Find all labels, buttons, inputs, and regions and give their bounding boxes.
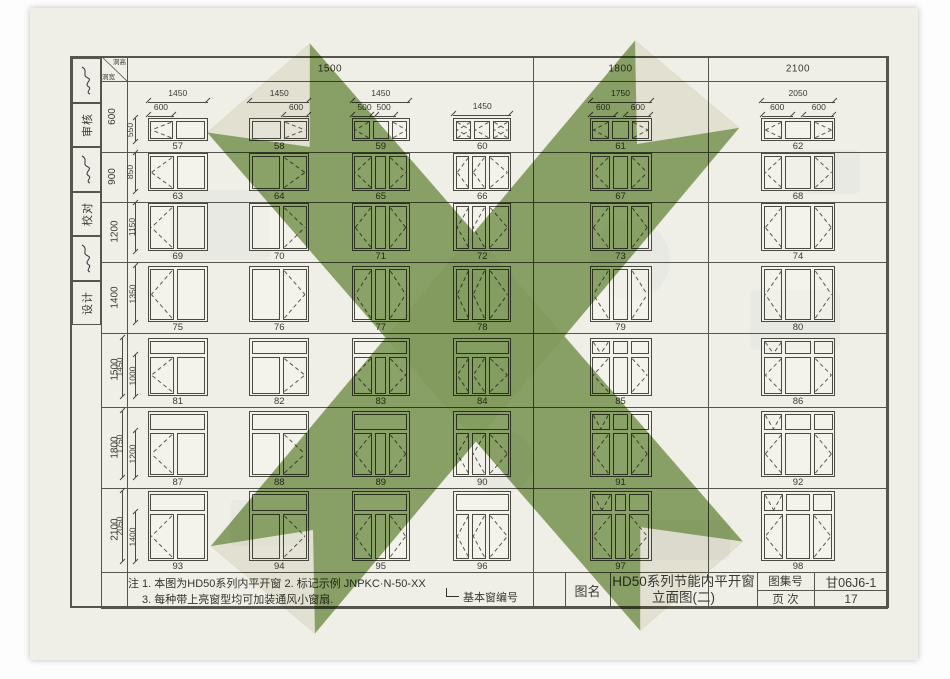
- sash-row: [454, 492, 510, 512]
- window-cell-72: 72: [432, 202, 534, 263]
- window-cell-90: 90: [432, 407, 534, 489]
- opening-direction-mark: [815, 207, 832, 248]
- fixed-pane: [177, 433, 206, 475]
- fixed-pane: [252, 341, 307, 355]
- opening-pane: [813, 514, 832, 559]
- opening-direction-mark: [473, 434, 485, 474]
- fixed-pane: [252, 206, 281, 249]
- dim-line: [590, 116, 616, 117]
- opening-direction-mark: [284, 434, 305, 474]
- window-cell-93: 2050140093: [127, 488, 229, 573]
- sash-row: [762, 267, 834, 321]
- opening-direction-mark: [490, 515, 508, 558]
- sash-row: [591, 512, 651, 560]
- window-drawing-wrap: [249, 411, 309, 477]
- sash-row: [762, 431, 834, 476]
- opening-pane: [764, 341, 783, 355]
- fixed-pane: [176, 121, 205, 139]
- fixed-pane: [150, 414, 205, 430]
- window-cell-83: 83: [330, 333, 432, 408]
- corner-label-hole-width: 洞宽: [102, 71, 115, 81]
- opening-pane: [150, 206, 173, 249]
- window-drawing-wrap: [761, 203, 835, 251]
- sash-row: [149, 267, 207, 321]
- opening-pane: [472, 156, 486, 189]
- window-drawing-wrap: [352, 338, 410, 396]
- callout-label: 基本窗编号: [463, 589, 518, 605]
- opening-pane: [631, 156, 649, 189]
- opening-direction-mark: [765, 434, 782, 474]
- opening-direction-mark: [593, 207, 609, 248]
- fixed-pane: [252, 357, 281, 393]
- opening-direction-mark: [632, 434, 648, 474]
- dim-line: [625, 116, 651, 117]
- width-dimension-sub: 600: [625, 105, 651, 117]
- sidebar-label-cell: 审核: [72, 103, 101, 148]
- window-number: 58: [274, 142, 285, 152]
- opening-direction-mark: [490, 434, 508, 474]
- fixed-pane: [375, 156, 386, 189]
- dim-text: 1450: [114, 358, 124, 377]
- window-cell-82: 82: [229, 333, 331, 408]
- window-drawing-wrap: [453, 118, 511, 141]
- window-cell-58: 145060058: [229, 81, 331, 153]
- opening-direction-mark: [632, 157, 648, 188]
- opening-direction-mark: [814, 515, 831, 558]
- sash-row: [353, 512, 409, 560]
- height-dimension: 1150: [135, 203, 136, 251]
- opening-direction-mark: [490, 157, 508, 188]
- sash-row: [454, 154, 510, 190]
- width-dimension-sub: 500: [371, 105, 395, 117]
- opening-direction-mark: [765, 358, 782, 392]
- opening-direction-mark: [593, 358, 609, 392]
- window-drawing-wrap: [590, 491, 652, 561]
- opening-pane: [592, 121, 609, 139]
- opening-pane: [489, 206, 509, 249]
- sash-row: [149, 154, 207, 190]
- window-elevation-80: [761, 266, 835, 322]
- fixed-pane: [786, 494, 810, 511]
- window-cell-71: 71: [330, 202, 432, 263]
- sash-row: [250, 339, 308, 356]
- opening-pane: [629, 514, 649, 559]
- opening-direction-mark: [473, 207, 485, 248]
- opening-pane: [814, 269, 833, 320]
- width-dimension-total: 1450: [453, 104, 511, 116]
- opening-direction-mark: [390, 434, 406, 474]
- window-number: 84: [477, 397, 488, 407]
- dim-text: 600: [283, 103, 308, 112]
- window-cell-67: 67: [533, 152, 708, 203]
- window-drawing-wrap: [352, 118, 410, 141]
- window-number: 98: [793, 562, 804, 572]
- dim-text: 600: [803, 103, 834, 112]
- window-drawing-wrap: [453, 153, 511, 191]
- fixed-pane: [354, 341, 407, 355]
- window-cell-61: 175060060061: [533, 81, 708, 153]
- dim-text: 850: [125, 165, 135, 179]
- sash-row: [353, 267, 409, 321]
- handwritten-signature: [79, 63, 95, 97]
- window-cell-89: 89: [330, 407, 432, 489]
- opening-pane: [392, 121, 408, 139]
- window-number: 80: [793, 323, 804, 333]
- window-drawing-wrap: [453, 266, 511, 322]
- opening-pane: [631, 433, 649, 475]
- window-drawing-wrap: [352, 203, 410, 251]
- window-elevation-63: [148, 153, 208, 191]
- opening-pane: [283, 156, 306, 189]
- window-drawing-wrap: [761, 338, 835, 396]
- sash-row: [250, 492, 308, 512]
- opening-direction-mark: [633, 122, 648, 138]
- sash-row: [454, 431, 510, 476]
- fixed-pane: [252, 156, 281, 189]
- window-cell-65: 65: [330, 152, 432, 203]
- sash-row: [250, 267, 308, 321]
- opening-direction-mark: [632, 358, 648, 392]
- window-number: 91: [615, 478, 626, 488]
- grid-line: [101, 608, 888, 609]
- window-cell-70: 70: [229, 202, 331, 263]
- window-cell-74: 74: [708, 202, 888, 263]
- sash-row: [250, 412, 308, 431]
- window-cell-76: 76: [229, 262, 331, 334]
- opening-pane: [472, 206, 486, 249]
- sash-row: [591, 492, 651, 512]
- width-dimension-sub: 600: [803, 105, 834, 117]
- window-number: 72: [477, 252, 488, 262]
- window-number: 61: [615, 142, 626, 152]
- window-elevation-91: [590, 411, 652, 477]
- opening-pane: [354, 357, 372, 393]
- dim-line: [283, 116, 308, 117]
- sash-row: [353, 204, 409, 250]
- sash-row: [250, 431, 308, 476]
- dim-text: 1350: [127, 285, 137, 304]
- opening-direction-mark: [765, 122, 782, 138]
- window-cell-84: 84: [432, 333, 534, 408]
- fixed-pane: [785, 121, 810, 139]
- sidebar-label: 校对: [79, 202, 95, 226]
- window-elevation-69: [148, 203, 208, 251]
- fixed-pane: [631, 341, 649, 355]
- fixed-pane: [252, 121, 281, 139]
- fixed-pane: [373, 121, 389, 139]
- scanned-drawing-page: 洞高洞宽150018002100600900120014001500180021…: [0, 0, 950, 679]
- dim-line: [148, 116, 173, 117]
- window-number: 74: [793, 252, 804, 262]
- window-cell-80: 80: [708, 262, 888, 334]
- opening-direction-mark: [765, 515, 782, 558]
- fixed-pane: [456, 494, 509, 511]
- window-drawing-wrap: [590, 411, 652, 477]
- window-drawing-wrap: [761, 491, 835, 561]
- opening-direction-mark: [593, 415, 609, 429]
- window-elevation-73: [590, 203, 652, 251]
- window-number: 67: [615, 192, 626, 202]
- fixed-pane: [177, 206, 206, 249]
- dim-text: 2050: [761, 89, 835, 98]
- window-cell-81: 1450100081: [127, 333, 229, 408]
- fixed-pane: [375, 206, 386, 249]
- window-number: 85: [615, 397, 626, 407]
- dim-text: 1750: [114, 435, 124, 454]
- window-elevation-97: [590, 491, 652, 561]
- window-number: 69: [172, 252, 183, 262]
- window-number: 86: [793, 397, 804, 407]
- height-dimension: 1400: [135, 512, 136, 561]
- window-cell-79: 79: [533, 262, 708, 334]
- window-number: 87: [172, 478, 183, 488]
- window-number: 94: [274, 562, 285, 572]
- window-cell-88: 88: [229, 407, 331, 489]
- sash-row: [353, 431, 409, 476]
- window-elevation-83: [352, 338, 410, 396]
- sash-row: [353, 154, 409, 190]
- opening-direction-mark: [390, 157, 406, 188]
- opening-pane: [354, 156, 372, 189]
- window-elevation-70: [249, 203, 309, 251]
- sash-row: [591, 431, 651, 476]
- sash-row: [591, 339, 651, 356]
- window-elevation-78: [453, 266, 511, 322]
- opening-pane: [592, 357, 610, 393]
- opening-pane: [389, 269, 407, 320]
- opening-pane: [150, 121, 173, 139]
- window-elevation-92: [761, 411, 835, 477]
- opening-direction-mark: [393, 122, 407, 138]
- window-elevation-57: [148, 118, 208, 141]
- opening-pane: [354, 433, 372, 475]
- fixed-pane: [785, 341, 810, 355]
- fixed-pane: [613, 414, 629, 430]
- fixed-pane: [785, 156, 810, 189]
- sash-row: [762, 119, 834, 140]
- opening-direction-mark: [630, 515, 648, 558]
- window-number: 57: [172, 142, 183, 152]
- window-elevation-59: [352, 118, 410, 141]
- opening-pane: [592, 414, 610, 430]
- opening-pane: [354, 514, 372, 559]
- window-elevation-68: [761, 153, 835, 191]
- width-dimension-sub-row: 600600: [590, 105, 652, 117]
- height-dimension: 1350: [135, 266, 136, 322]
- window-cell-64: 64: [229, 152, 331, 203]
- window-cell-78: 78: [432, 262, 534, 334]
- dim-line: [762, 116, 793, 117]
- fixed-pane: [613, 357, 629, 393]
- fixed-pane: [150, 341, 205, 355]
- fixed-pane: [375, 269, 386, 320]
- fixed-pane: [375, 514, 386, 559]
- dim-text: 1750: [590, 89, 652, 98]
- opening-pane: [631, 357, 649, 393]
- window-drawing-wrap: [249, 266, 309, 322]
- opening-direction-mark: [151, 270, 172, 319]
- opening-direction-mark: [151, 157, 172, 188]
- window-drawing-wrap: [453, 411, 511, 477]
- sidebar-label: 设计: [79, 291, 95, 315]
- window-elevation-81: [148, 338, 208, 396]
- window-drawing-wrap: [352, 266, 410, 322]
- fixed-pane: [785, 206, 810, 249]
- opening-pane: [283, 514, 306, 559]
- sash-row: [149, 339, 207, 356]
- window-drawing-wrap: [249, 203, 309, 251]
- window-number: 82: [274, 397, 285, 407]
- window-number: 75: [172, 323, 183, 333]
- window-drawing-wrap: [453, 491, 511, 561]
- fixed-pane: [631, 414, 649, 430]
- window-drawing-wrap: [352, 153, 410, 191]
- fixed-pane: [252, 269, 281, 320]
- window-drawing-wrap: [590, 266, 652, 322]
- opening-pane: [389, 357, 407, 393]
- window-elevation-84: [453, 338, 511, 396]
- opening-direction-mark: [815, 358, 832, 392]
- opening-direction-mark: [355, 515, 371, 558]
- sidebar-label: 审核: [79, 113, 95, 137]
- window-elevation-64: [249, 153, 309, 191]
- opening-direction-mark: [593, 270, 609, 319]
- sash-row: [762, 154, 834, 190]
- opening-direction-mark: [284, 515, 305, 558]
- dim-text: 1400: [127, 527, 137, 546]
- atlas-number-label: 图集号: [757, 572, 814, 590]
- opening-pane: [631, 206, 649, 249]
- opening-pane: [592, 433, 610, 475]
- fixed-pane: [150, 494, 205, 511]
- window-elevation-94: [249, 491, 309, 561]
- opening-pane: [764, 121, 783, 139]
- window-drawing-wrap: 850: [148, 153, 208, 191]
- sash-row: [762, 512, 834, 560]
- window-number: 78: [477, 323, 488, 333]
- sash-row: [762, 412, 834, 431]
- opening-pane: [592, 206, 610, 249]
- window-number: 73: [615, 252, 626, 262]
- window-cell-96: 96: [432, 488, 534, 573]
- window-drawing-wrap: [249, 153, 309, 191]
- dim-line: [453, 115, 511, 116]
- opening-pane: [389, 433, 407, 475]
- opening-pane: [764, 494, 783, 511]
- fixed-pane: [252, 494, 307, 511]
- opening-pane: [631, 269, 649, 320]
- sash-row: [353, 492, 409, 512]
- window-elevation-66: [453, 153, 511, 191]
- window-drawing-wrap: [590, 338, 652, 396]
- window-number: 81: [172, 397, 183, 407]
- window-number: 79: [615, 323, 626, 333]
- window-number: 90: [477, 478, 488, 488]
- opening-direction-mark: [593, 342, 609, 354]
- window-drawing-wrap: 20501400: [148, 491, 208, 561]
- height-dimension: 1450: [122, 338, 123, 396]
- opening-pane: [150, 357, 173, 393]
- opening-pane: [354, 269, 372, 320]
- opening-direction-mark: [765, 342, 782, 354]
- fixed-pane: [177, 514, 206, 559]
- opening-direction-mark: [765, 207, 782, 248]
- window-elevation-95: [352, 491, 410, 561]
- sash-row: [762, 204, 834, 250]
- window-cell-73: 73: [533, 202, 708, 263]
- opening-pane: [814, 121, 833, 139]
- window-drawing-wrap: [590, 118, 652, 141]
- opening-direction-mark: [285, 122, 306, 138]
- grid-line: [70, 56, 888, 58]
- window-elevation-79: [590, 266, 652, 322]
- sash-row: [591, 204, 651, 250]
- opening-pane: [389, 156, 407, 189]
- sash-row: [762, 356, 834, 395]
- opening-pane: [472, 269, 486, 320]
- sash-row: [149, 412, 207, 431]
- window-drawing-wrap: [352, 491, 410, 561]
- sash-row: [353, 339, 409, 356]
- opening-direction-mark: [457, 434, 469, 474]
- fixed-pane: [354, 414, 407, 430]
- opening-pane: [283, 206, 306, 249]
- sidebar-signature-cell: [72, 236, 101, 281]
- opening-direction-mark: [494, 122, 508, 138]
- opening-direction-mark: [490, 270, 508, 319]
- window-cell-95: 95: [330, 488, 432, 573]
- page-number-label: 页 次: [757, 590, 814, 608]
- window-drawing-wrap: [352, 411, 410, 477]
- window-drawing-wrap: 1350: [148, 266, 208, 322]
- opening-pane: [764, 357, 783, 393]
- window-cell-85: 85: [533, 333, 708, 408]
- dim-text: 600: [590, 103, 616, 112]
- dim-text: 1150: [127, 218, 137, 236]
- opening-direction-mark: [390, 515, 406, 558]
- opening-pane: [592, 156, 610, 189]
- opening-pane: [814, 156, 833, 189]
- width-dimension-sub: 600: [590, 105, 616, 117]
- sash-row: [149, 512, 207, 560]
- window-elevation-67: [590, 153, 652, 191]
- window-number: 92: [793, 478, 804, 488]
- opening-direction-mark: [473, 270, 485, 319]
- sash-row: [149, 204, 207, 250]
- window-elevation-72: [453, 203, 511, 251]
- sash-row: [250, 356, 308, 395]
- opening-pane: [283, 433, 306, 475]
- window-elevation-77: [352, 266, 410, 322]
- opening-direction-mark: [151, 434, 172, 474]
- opening-pane: [489, 357, 509, 393]
- opening-direction-mark: [593, 495, 611, 510]
- opening-direction-mark: [475, 122, 489, 138]
- sash-row: [454, 267, 510, 321]
- fixed-pane: [785, 433, 810, 475]
- dim-text: 600: [148, 103, 173, 112]
- fixed-pane: [456, 414, 509, 430]
- sash-row: [353, 356, 409, 395]
- fixed-pane: [613, 269, 629, 320]
- column-header-1800: 1800: [608, 64, 632, 75]
- corner-label-hole-height: 洞高: [113, 56, 126, 66]
- sash-row: [591, 267, 651, 321]
- opening-pane: [814, 357, 833, 393]
- opening-pane: [764, 414, 783, 430]
- opening-direction-mark: [151, 358, 172, 392]
- window-number: 77: [375, 323, 386, 333]
